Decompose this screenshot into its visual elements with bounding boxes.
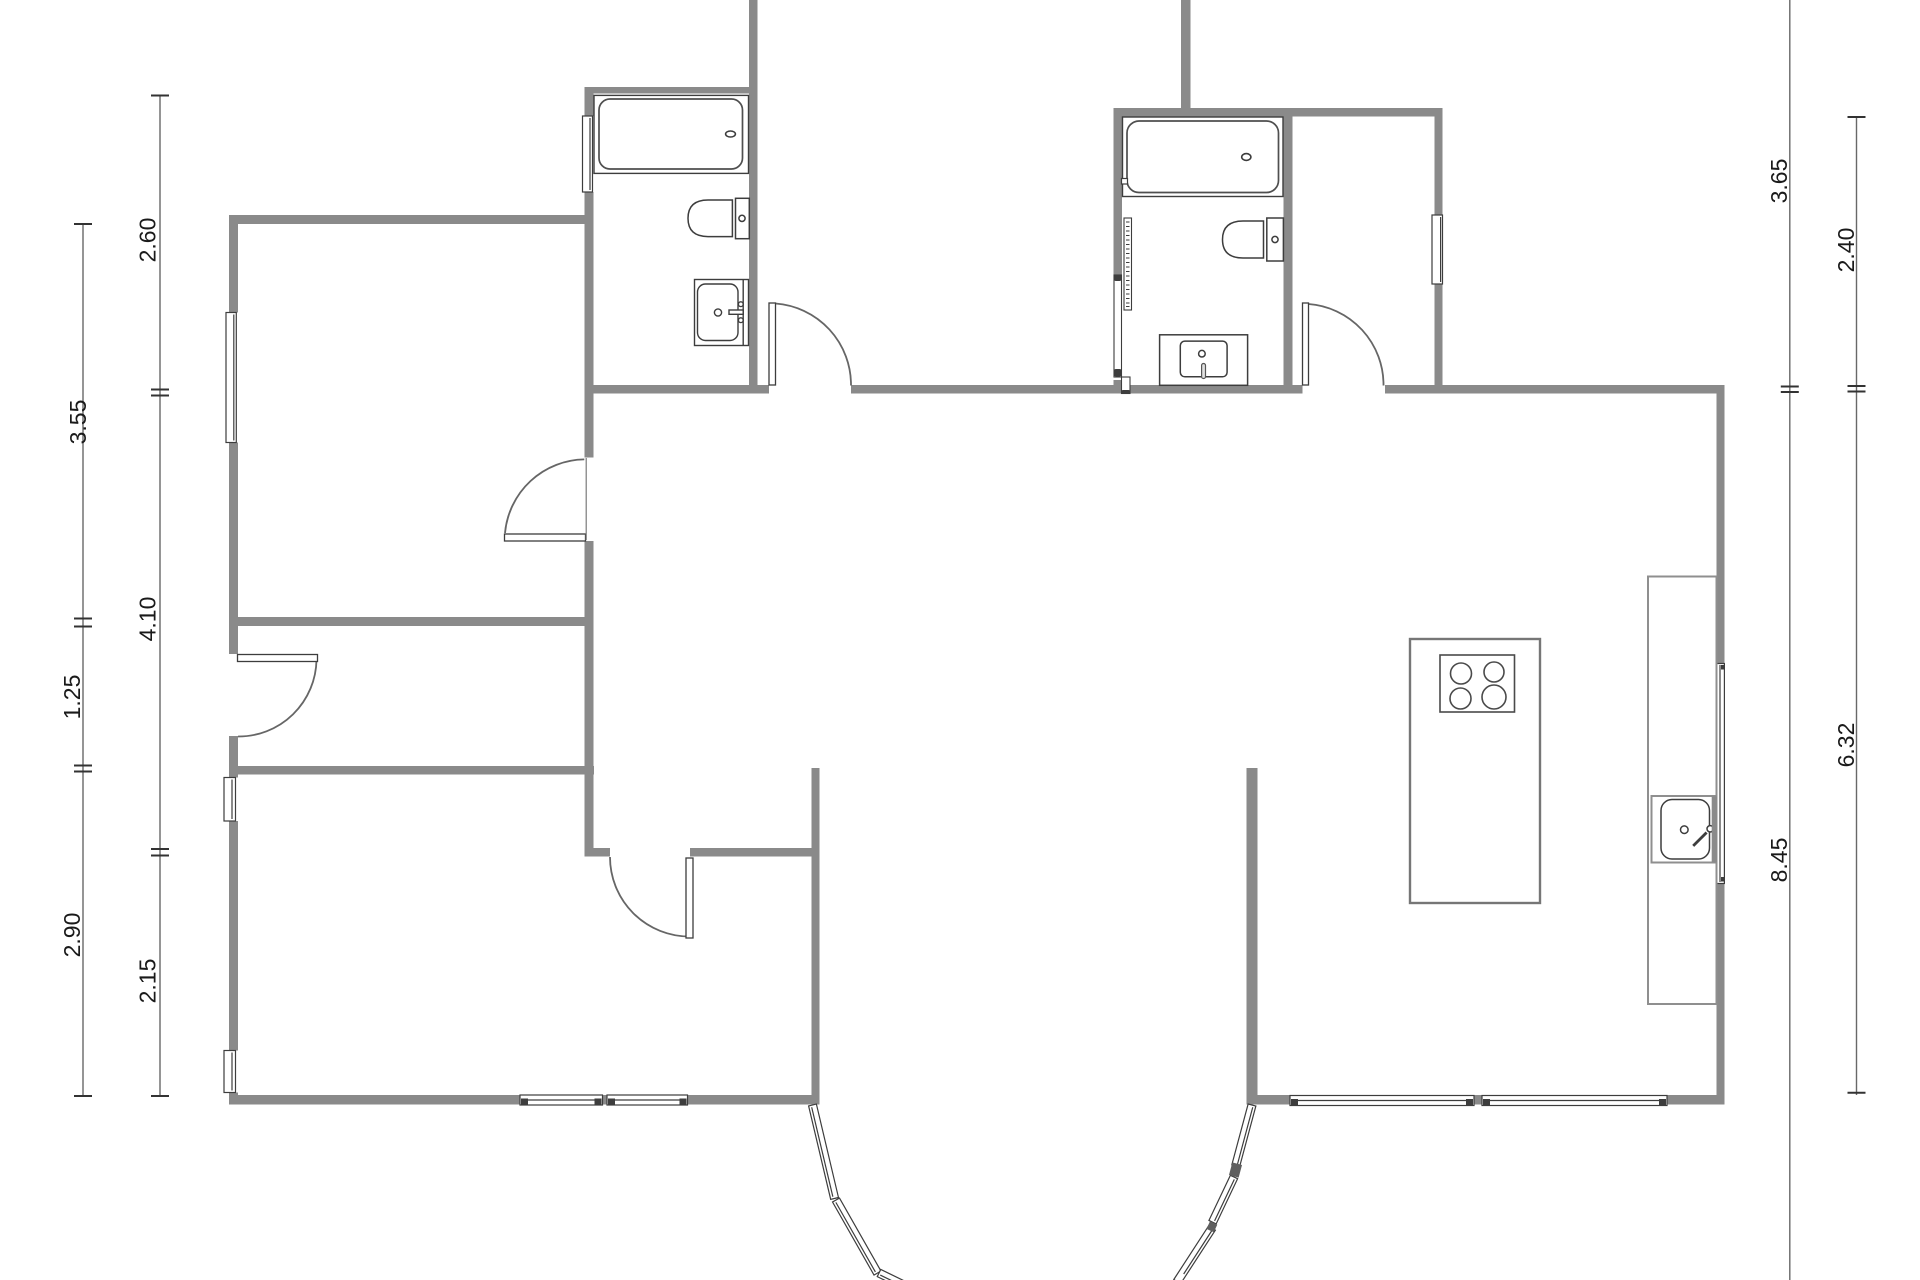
- svg-text:4.10: 4.10: [135, 597, 161, 642]
- svg-text:1.25: 1.25: [59, 675, 85, 720]
- svg-text:2.90: 2.90: [59, 913, 85, 958]
- svg-text:2.60: 2.60: [135, 218, 161, 263]
- svg-text:2.15: 2.15: [135, 959, 161, 1004]
- svg-text:3.65: 3.65: [1766, 159, 1792, 204]
- svg-text:6.32: 6.32: [1833, 723, 1859, 768]
- svg-text:8.45: 8.45: [1766, 838, 1792, 883]
- svg-text:2.40: 2.40: [1833, 228, 1859, 273]
- svg-text:3.55: 3.55: [65, 400, 91, 445]
